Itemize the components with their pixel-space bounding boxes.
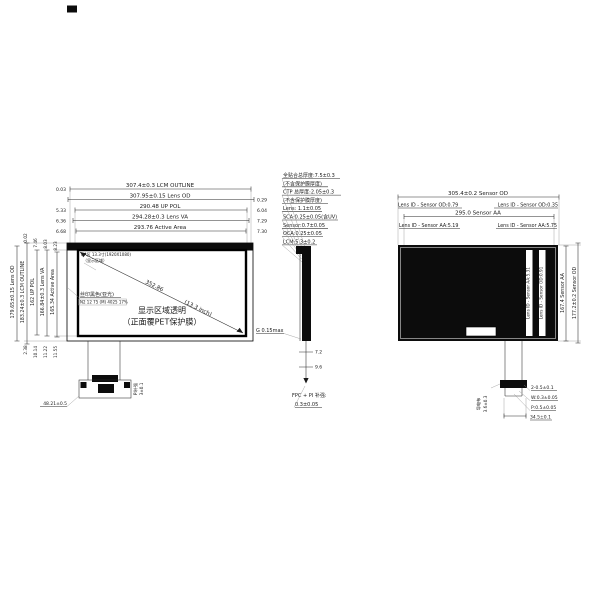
drawing-line — [84, 263, 96, 270]
connector-body — [98, 384, 114, 393]
ctp-cap — [296, 246, 311, 254]
dim-label-vert: 179.65±0.15 Lens OD — [10, 265, 16, 318]
fpc-note-1: FPC + PI 补强: — [292, 392, 327, 399]
aa-note-2: （显示区域） — [83, 257, 107, 263]
center-note-2: （正面覆PET保护膜） — [123, 317, 202, 327]
stack-notes: 全贴合总厚度:7.5±0.3 (不含保护膜厚度) CTP 总厚度:2.05±0.… — [282, 172, 341, 262]
dim-label-vert: 183.24±0.3 LCM OUTLINE — [20, 261, 26, 324]
sensor-aa-vert-dim: 167.4 Sensor AA — [560, 272, 566, 313]
stack-note: (不含保护膜厚度) — [283, 197, 322, 204]
front-top-dimensions: 307.4±0.3 LCM OUTLINE 0.03 307.95±0.15 L… — [56, 183, 267, 250]
engineering-drawing-page: 307.4±0.3 LCM OUTLINE 0.03 307.95±0.15 L… — [0, 0, 600, 600]
side-view: 全贴合总厚度:7.5±0.3 (不含保护膜厚度) CTP 总厚度:2.05±0.… — [256, 172, 341, 408]
dim-label: 294.28±0.3 Lens VA — [132, 215, 188, 221]
lens-sensor-aa-left: Lens ID - Sensor AA:5.19 — [399, 223, 458, 229]
dim-offset: 7.29 — [257, 219, 267, 225]
corner-mark — [67, 6, 77, 13]
dim-offset-vert: 11.55 — [53, 346, 58, 358]
dim-label-vert: 166.84±0.3 Lens VA — [40, 267, 46, 317]
dim-offset: 6.68 — [56, 229, 66, 235]
fpc-arrow — [303, 378, 308, 384]
back-panel: Lens ID - Sensor AA:5.31 Lens ID - Senso… — [398, 245, 558, 341]
tail-dim-4: 34.5±0.1 — [530, 415, 551, 421]
lens-sensor-aa-right: Lens ID - Sensor AA:5.75 — [498, 223, 557, 229]
dim-label-vert: 165.34 Active Area — [50, 269, 56, 315]
stack-note: Lens: 1.1±0.05 — [283, 206, 321, 212]
fpc-note-2: 0.3±0.05 — [295, 402, 318, 408]
silk-print-label: 丝印黑色(亚光) — [80, 291, 114, 298]
pi-stiffener-label: PI补强 — [132, 382, 139, 395]
aa-note: AA区 13.3寸(1920X1080) — [81, 251, 131, 257]
fpc-dim-2: 9.6 — [315, 365, 322, 371]
dim-offset-vert: 11.22 — [43, 346, 48, 358]
front-left-dimensions: 179.65±0.15 Lens OD 183.24±0.3 LCM OUTLI… — [10, 233, 78, 358]
dim-offset: 0.03 — [56, 187, 66, 193]
dim-offset: 6.36 — [56, 219, 66, 225]
drawing-canvas: 307.4±0.3 LCM OUTLINE 0.03 307.95±0.15 L… — [0, 0, 600, 600]
back-cover — [398, 245, 558, 341]
stack-note: OCA:0.25±0.05 — [283, 231, 322, 237]
drawing-line — [81, 382, 87, 388]
dim-label: 290.48 UP POL — [140, 204, 182, 210]
lens-sensor-od-left: Lens ID - Sensor OD:0.79 — [398, 203, 458, 209]
dim-label-vert: 162 UP POL — [30, 278, 36, 306]
dim-label: 293.76 Active Area — [134, 225, 186, 231]
dim-label: 307.4±0.3 LCM OUTLINE — [126, 183, 195, 189]
back-top-dimensions: 305.4±0.2 Sensor OD Lens ID - Sensor OD:… — [398, 191, 559, 245]
back-right-dimensions: 167.4 Sensor AA 177.2±0.2 Sensor OD — [558, 243, 581, 343]
stack-note: CTP 总厚度:2.05±0.3 — [283, 189, 334, 196]
stack-note: 全贴合总厚度:7.5±0.3 — [283, 172, 335, 179]
dim-offset-vert: 8.03 — [43, 239, 48, 249]
fpc-dim-1: 7.2 — [315, 350, 322, 356]
tail-stiffener — [500, 380, 527, 388]
tail-dim-3: P:0.5±0.05 — [531, 405, 556, 411]
lens-sensor-od-right: Lens ID - Sensor OD:0.35 — [498, 203, 558, 209]
drawing-line — [514, 394, 530, 411]
stack-note: (不含保护膜厚度) — [283, 180, 322, 187]
dim-offset: 5.33 — [56, 208, 66, 214]
sensor-aa-dim: 295.0 Sensor AA — [455, 211, 501, 217]
gap-dim: G 0.15max — [256, 328, 284, 334]
silk-print-spec: N2 12 75 (M) 4025 17% — [80, 300, 128, 305]
dim-offset-vert: 8.23 — [53, 241, 58, 251]
back-view: 305.4±0.2 Sensor OD Lens ID - Sensor OD:… — [398, 191, 581, 421]
drawing-line — [67, 396, 79, 407]
side-fpc: 7.2 9.6 FPC + PI 补强: 0.3±0.05 — [292, 341, 327, 408]
v-inner-od-label: Lens ID - Sensor OD:0.91 — [539, 266, 544, 319]
stack-note: Sensor:0.7±0.05 — [283, 223, 325, 229]
sensor-od-vert-dim: 177.2±0.2 Sensor OD — [572, 267, 578, 320]
diagonal-inch-label: (13.3 inch) — [183, 299, 212, 318]
dim-offset: 0.29 — [257, 198, 267, 204]
center-note-1: 显示区域透明 — [138, 305, 186, 315]
dim-offset-vert: 2.38 — [23, 345, 28, 355]
dim-offset-vert: 0.02 — [23, 233, 28, 243]
conductive-cloth-dim: 3.6±0.3 — [483, 395, 488, 412]
dim-offset-vert: 10.14 — [33, 346, 38, 358]
pi-stiffener-dim: 3±0.1 — [139, 382, 144, 395]
tail-dim-1: 2-0.5±0.1 — [531, 385, 554, 391]
dim-offset: 6.04 — [257, 208, 267, 214]
front-view: 307.4±0.3 LCM OUTLINE 0.03 307.95±0.15 L… — [10, 183, 267, 407]
diagonal-dim-label: 352.86 — [144, 279, 164, 293]
fpc-stiffener — [92, 375, 118, 382]
dim-label: 307.95±0.15 Lens OD — [130, 194, 191, 200]
dim-offset: 7.30 — [257, 229, 267, 235]
drawing-line — [284, 334, 301, 340]
drawing-line — [124, 382, 130, 388]
label-slot — [466, 327, 496, 336]
dim-offset-vert: 7.46 — [33, 238, 38, 248]
sensor-od-dim: 305.4±0.2 Sensor OD — [448, 191, 508, 197]
front-panel: 352.86 (13.3 inch) AA区 13.3寸(1920X1080) … — [67, 243, 253, 341]
conductive-cloth-label: 导电布 — [475, 398, 482, 411]
back-fpc: 导电布 3.6±0.3 2-0.5±0.1 W:0.3±0.05 P:0.5±0… — [475, 341, 558, 421]
drawing-line — [491, 384, 500, 388]
lcm-profile — [302, 254, 311, 341]
fpc-offset-dim: 48.21±0.5 — [43, 401, 67, 407]
v-inner-aa-label: Lens ID - Sensor AA:5.31 — [526, 267, 531, 319]
tail-dim-2: W:0.3±0.05 — [531, 395, 558, 401]
side-profile: G 0.15max — [256, 246, 311, 341]
